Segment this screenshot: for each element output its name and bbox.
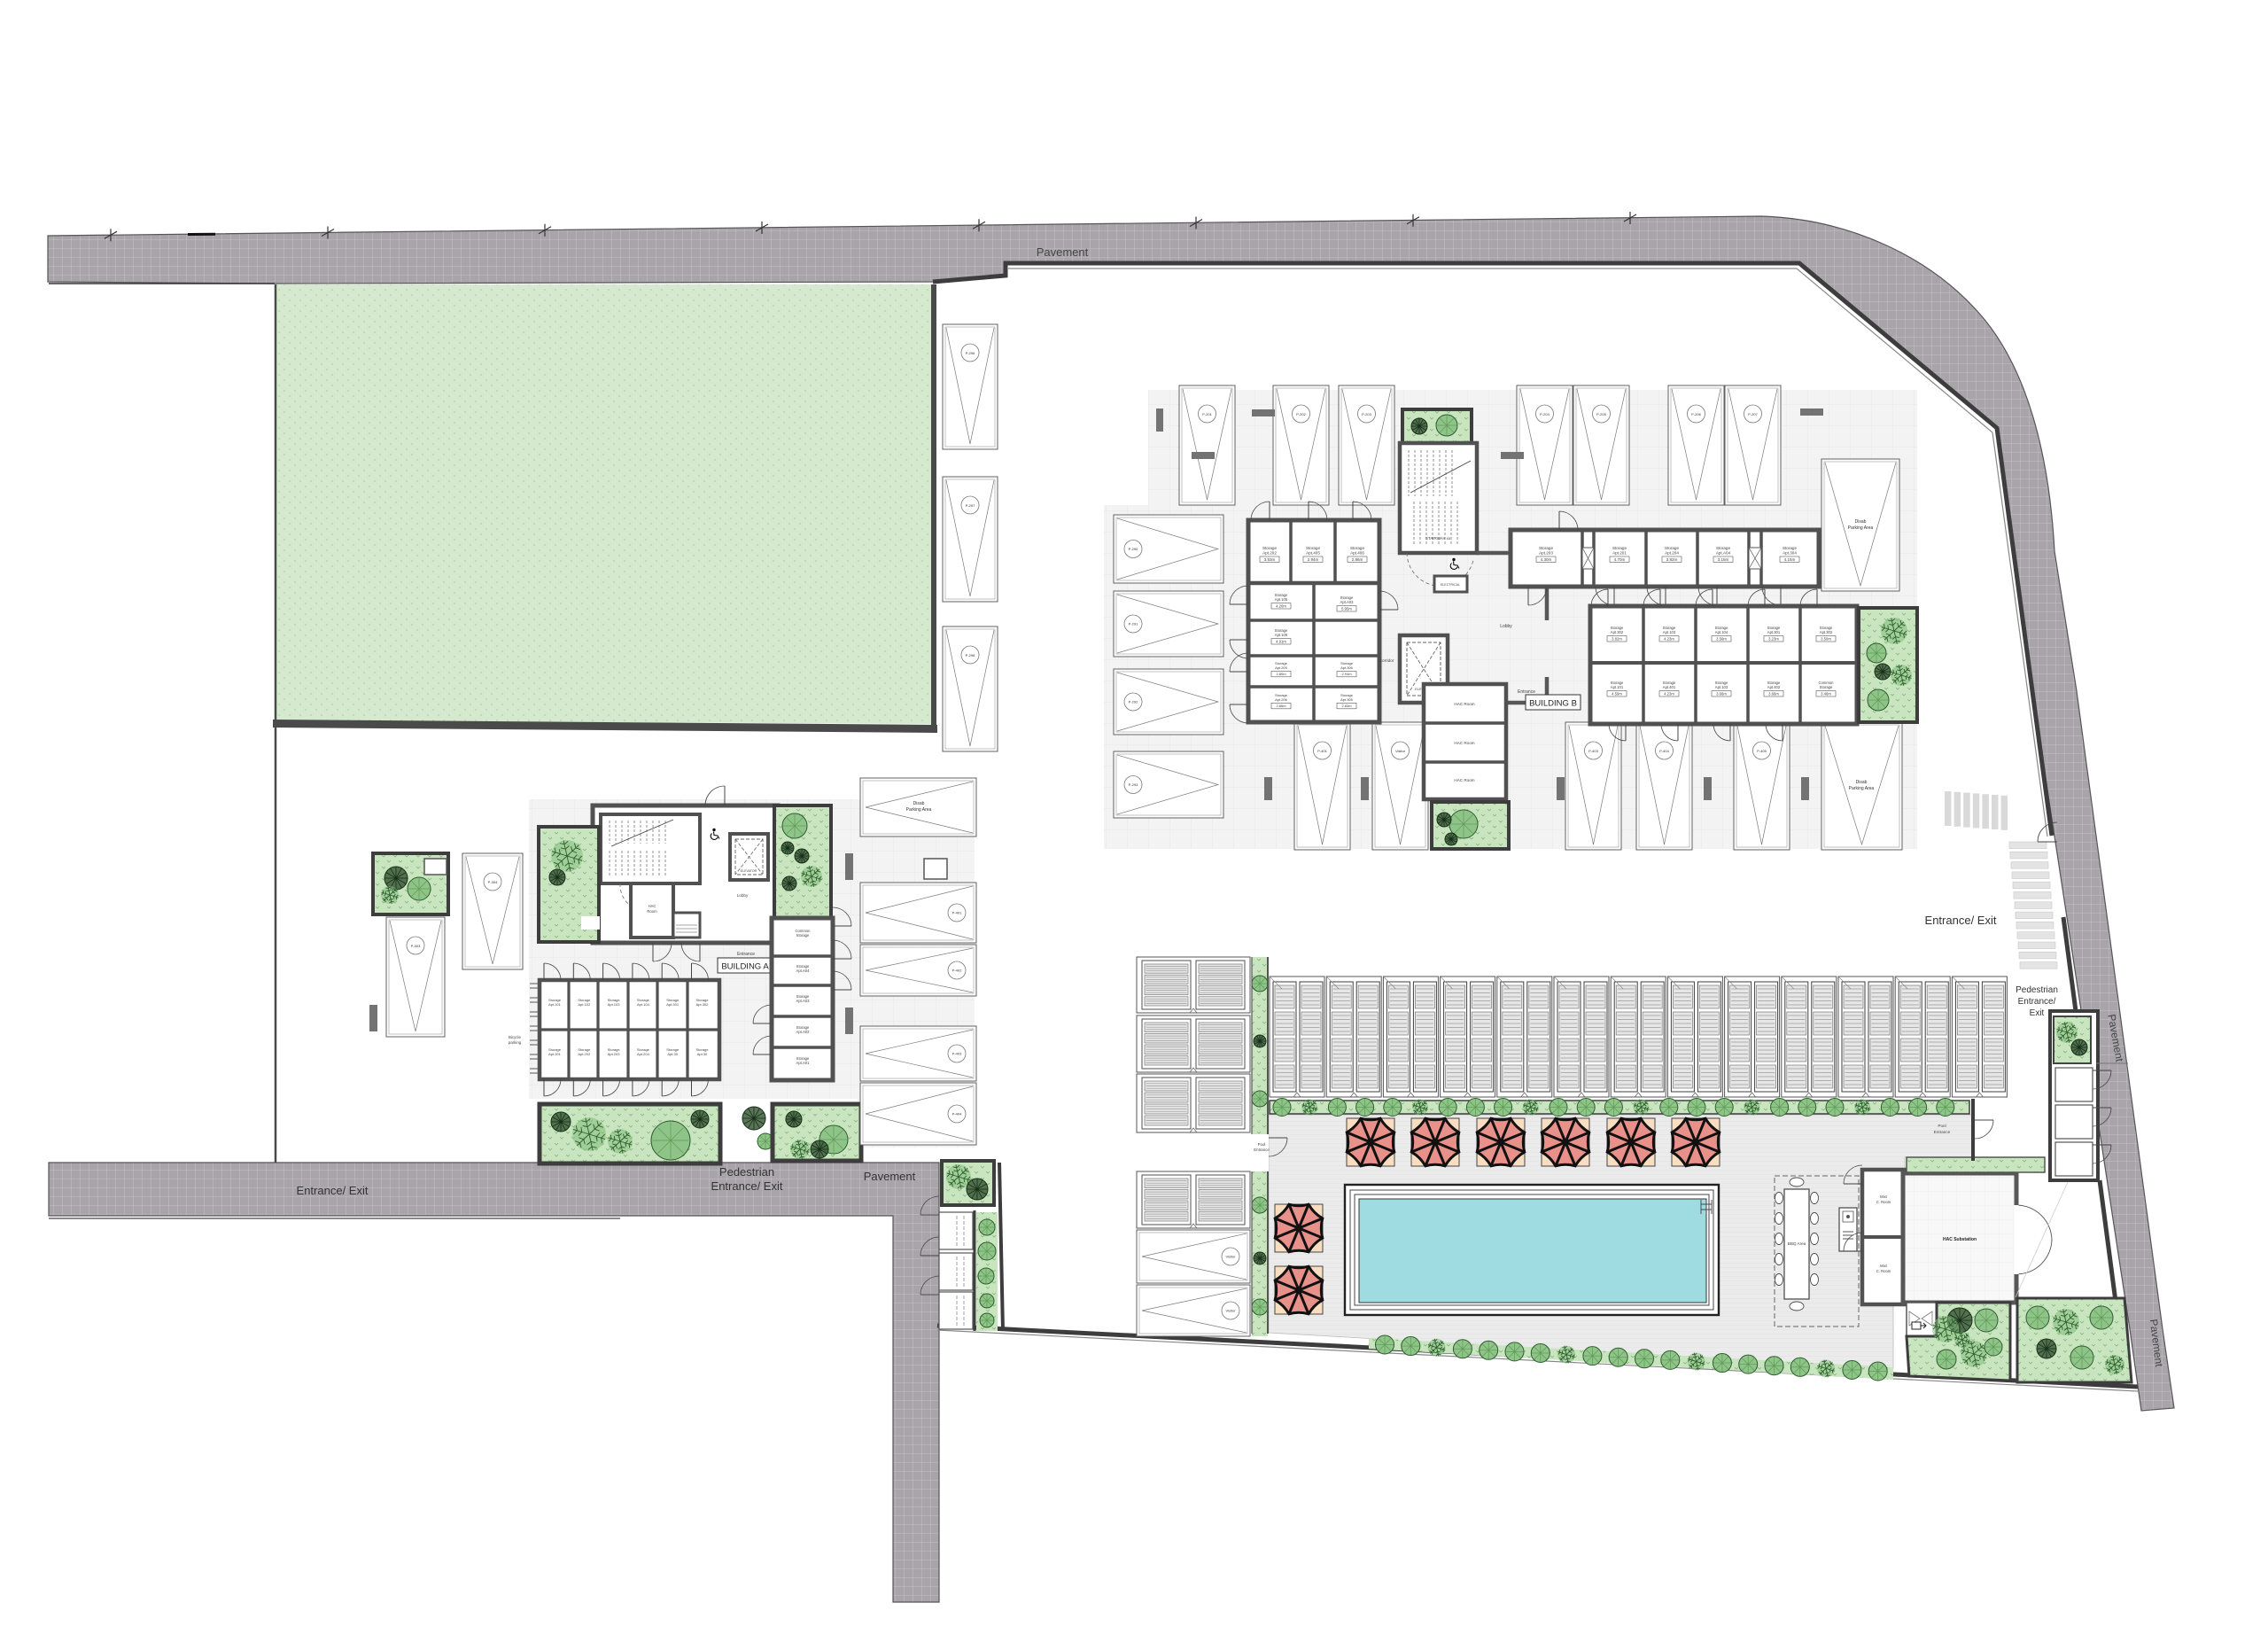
svg-text:Entrance/: Entrance/: [2018, 997, 2056, 1007]
svg-text:Storage: Storage: [1350, 546, 1365, 550]
svg-text:2.83m: 2.83m: [1341, 704, 1352, 708]
svg-text:parking: parking: [509, 1040, 522, 1045]
svg-text:3.53m: 3.53m: [1264, 557, 1276, 562]
svg-text:P-292: P-292: [1129, 700, 1138, 704]
svg-text:Entrance/ Exit: Entrance/ Exit: [297, 1184, 369, 1197]
svg-text:Apt.401: Apt.401: [1663, 685, 1676, 689]
svg-text:3.82m: 3.82m: [1612, 636, 1622, 641]
svg-text:4.91m: 4.91m: [1276, 639, 1286, 643]
svg-text:Visitor: Visitor: [1225, 1255, 1236, 1259]
svg-text:BBQ Area: BBQ Area: [1788, 1241, 1806, 1246]
svg-text:Apt.202: Apt.202: [578, 1052, 591, 1056]
svg-text:4.59m: 4.59m: [1612, 691, 1622, 696]
svg-text:Apt.203: Apt.203: [608, 1052, 621, 1056]
svg-text:Apt.201: Apt.201: [1612, 550, 1627, 555]
svg-text:HAC Room: HAC Room: [1454, 741, 1474, 745]
svg-text:Apt.A03: Apt.A03: [1340, 600, 1355, 604]
svg-text:Apt.103: Apt.103: [608, 1002, 621, 1007]
svg-text:Apt.205: Apt.205: [1275, 665, 1288, 670]
svg-text:Apt.405: Apt.405: [1306, 550, 1320, 555]
svg-text:Apt.306: Apt.306: [1340, 665, 1354, 670]
svg-text:Apt.402: Apt.402: [1767, 685, 1781, 689]
svg-text:P-304: P-304: [488, 880, 498, 884]
svg-text:Apt.A04: Apt.A04: [1716, 550, 1731, 555]
svg-text:Apt.301: Apt.301: [1767, 630, 1781, 634]
svg-text:Storage: Storage: [1262, 546, 1278, 550]
svg-text:Storage: Storage: [1665, 546, 1680, 550]
svg-text:Mixt: Mixt: [1880, 1264, 1888, 1268]
svg-text:P-402: P-402: [952, 969, 962, 973]
svg-text:Pedestrian: Pedestrian: [719, 1165, 774, 1179]
svg-text:Apt.302: Apt.302: [1820, 630, 1833, 634]
svg-text:P-405: P-405: [1757, 749, 1767, 753]
svg-text:Disab: Disab: [1856, 780, 1868, 785]
svg-text:Bicycle: Bicycle: [509, 1035, 521, 1039]
svg-text:Apt.304: Apt.304: [1783, 550, 1797, 555]
svg-text:Entrance: Entrance: [1518, 689, 1535, 695]
svg-text:Storage: Storage: [1820, 685, 1833, 689]
svg-text:2.86m: 2.86m: [1352, 557, 1363, 562]
svg-text:Apt.201: Apt.201: [548, 1052, 562, 1056]
svg-text:P-291: P-291: [1129, 622, 1138, 626]
svg-text:Parking Area: Parking Area: [1848, 525, 1874, 531]
svg-text:P-401: P-401: [1317, 749, 1327, 753]
svg-text:Room: Room: [647, 909, 657, 914]
svg-text:Apt.406: Apt.406: [1350, 550, 1364, 555]
svg-text:Disab: Disab: [1855, 519, 1867, 525]
svg-text:Apt.104: Apt.104: [1715, 630, 1728, 634]
svg-text:Storage: Storage: [1716, 546, 1731, 550]
svg-text:4.20m: 4.20m: [1276, 603, 1286, 608]
svg-text:Corridor: Corridor: [1379, 658, 1394, 663]
svg-text:ELECTRICAL: ELECTRICAL: [1441, 583, 1460, 587]
svg-text:P-202: P-202: [1296, 412, 1306, 416]
svg-text:Apt.203: Apt.203: [1539, 550, 1553, 555]
svg-text:3.66m: 3.66m: [1716, 691, 1727, 696]
svg-text:Parking Area: Parking Area: [1849, 786, 1875, 791]
svg-text:3.56m: 3.56m: [1716, 636, 1727, 641]
svg-text:Apt.A01: Apt.A01: [796, 1061, 811, 1065]
svg-text:HAC Room: HAC Room: [1454, 778, 1474, 782]
svg-text:2.94m: 2.94m: [1341, 672, 1352, 676]
svg-text:P-207: P-207: [1748, 412, 1758, 416]
svg-text:Apt.103: Apt.103: [1663, 630, 1676, 634]
svg-text:Pavement: Pavement: [1037, 245, 1089, 259]
svg-text:P-203: P-203: [1362, 412, 1371, 416]
svg-text:Storage: Storage: [1539, 546, 1554, 550]
svg-text:STAIRWAY xx: STAIRWAY xx: [1425, 536, 1451, 541]
svg-text:P-404: P-404: [1659, 749, 1669, 753]
svg-text:3.46m: 3.46m: [1821, 691, 1831, 696]
svg-text:Entrance: Entrance: [1934, 1130, 1951, 1134]
svg-text:P-401: P-401: [952, 911, 962, 915]
svg-text:Apt.104: Apt.104: [637, 1002, 650, 1007]
svg-text:3.23m: 3.23m: [1768, 636, 1779, 641]
svg-text:BUILDING B: BUILDING B: [1529, 699, 1577, 709]
svg-text:Apt.101: Apt.101: [1611, 685, 1624, 689]
svg-text:Apt.A02: Apt.A02: [796, 1030, 811, 1034]
svg-text:Apt.204: Apt.204: [637, 1052, 650, 1056]
svg-text:Apt.206: Apt.206: [1275, 697, 1288, 702]
svg-text:Apt.301: Apt.301: [666, 1002, 680, 1007]
svg-text:Apt.302: Apt.302: [1611, 630, 1624, 634]
svg-text:Apt.302: Apt.302: [696, 1002, 710, 1007]
svg-text:Storage: Storage: [1306, 546, 1321, 550]
svg-text:Entrance: Entrance: [1254, 1148, 1270, 1152]
svg-text:Apt.A03: Apt.A03: [796, 999, 811, 1003]
svg-text:3.82m: 3.82m: [1666, 557, 1678, 562]
svg-text:Lobby: Lobby: [737, 893, 749, 898]
svg-text:Entrance/ Exit: Entrance/ Exit: [1925, 914, 1997, 927]
svg-text:3.15m: 3.15m: [1718, 557, 1729, 562]
svg-text:HAC Substation: HAC Substation: [1943, 1237, 1977, 1242]
svg-text:5.95m: 5.95m: [1341, 606, 1352, 611]
svg-text:P-293: P-293: [1129, 782, 1138, 787]
svg-text:4.30m: 4.30m: [1541, 557, 1552, 562]
svg-text:P-201: P-201: [1202, 412, 1212, 416]
svg-text:Apt.305: Apt.305: [1340, 697, 1354, 702]
svg-text:Exit: Exit: [2030, 1008, 2045, 1018]
svg-text:4.15m: 4.15m: [1784, 557, 1796, 562]
svg-text:Visitor: Visitor: [1395, 749, 1406, 753]
svg-text:P-206: P-206: [1691, 412, 1701, 416]
svg-text:P-403: P-403: [1588, 749, 1598, 753]
svg-text:2.94m: 2.94m: [1308, 557, 1319, 562]
svg-text:2.80m: 2.80m: [1276, 672, 1286, 676]
svg-text:Visitor: Visitor: [1225, 1309, 1236, 1313]
svg-text:2.86m: 2.86m: [1276, 704, 1286, 708]
svg-text:Entrance/ Exit: Entrance/ Exit: [711, 1179, 783, 1193]
svg-text:ELEVATOR: ELEVATOR: [741, 869, 757, 873]
svg-text:Storage: Storage: [1612, 546, 1627, 550]
svg-text:3.50m: 3.50m: [1821, 636, 1831, 641]
svg-text:Apt.A04: Apt.A04: [796, 969, 811, 973]
svg-text:Parking Area: Parking Area: [906, 807, 932, 813]
svg-text:Apt.30: Apt.30: [667, 1052, 678, 1056]
svg-text:Disab: Disab: [913, 801, 925, 806]
svg-text:HAC Room: HAC Room: [1454, 702, 1474, 706]
svg-text:P-296: P-296: [966, 351, 975, 355]
svg-text:Apt.103: Apt.103: [1715, 685, 1728, 689]
svg-text:Apt.30: Apt.30: [697, 1052, 708, 1056]
svg-text:P-204: P-204: [1540, 412, 1550, 416]
svg-text:Mixt: Mixt: [1880, 1194, 1888, 1199]
svg-text:P-303: P-303: [411, 944, 421, 948]
svg-text:4.70m: 4.70m: [1614, 557, 1626, 562]
svg-text:P-297: P-297: [966, 503, 975, 508]
svg-text:P-403: P-403: [952, 1052, 962, 1056]
svg-text:4.23m: 4.23m: [1664, 636, 1674, 641]
svg-text:Lobby: Lobby: [1500, 624, 1512, 629]
svg-text:Apt.106: Apt.106: [1275, 633, 1288, 637]
svg-text:P-298: P-298: [966, 653, 975, 657]
svg-text:Storage: Storage: [796, 933, 810, 938]
svg-text:Apt.202: Apt.202: [1262, 550, 1277, 555]
svg-text:4.23m: 4.23m: [1664, 691, 1674, 696]
svg-text:Apt.105: Apt.105: [1275, 597, 1288, 602]
svg-text:P-205: P-205: [1596, 412, 1606, 416]
svg-text:C. Room: C. Room: [1876, 1269, 1891, 1273]
svg-text:P-290: P-290: [1129, 547, 1138, 551]
svg-text:Pedestrian: Pedestrian: [2016, 985, 2058, 995]
svg-text:BUILDING A: BUILDING A: [721, 962, 769, 972]
svg-text:HAC: HAC: [649, 904, 656, 908]
svg-text:Pool: Pool: [1258, 1142, 1266, 1147]
svg-text:3.66m: 3.66m: [1768, 691, 1779, 696]
svg-text:Apt.204: Apt.204: [1665, 550, 1679, 555]
svg-text:P-404: P-404: [952, 1112, 962, 1117]
svg-text:Pool: Pool: [1938, 1124, 1946, 1128]
svg-text:Pavement: Pavement: [864, 1170, 916, 1183]
svg-text:Apt.102: Apt.102: [578, 1002, 591, 1007]
svg-text:Storage: Storage: [1783, 546, 1798, 550]
svg-text:Entrance: Entrance: [737, 952, 755, 957]
svg-text:Apt.101: Apt.101: [548, 1002, 562, 1007]
svg-text:C. Room: C. Room: [1876, 1200, 1891, 1204]
